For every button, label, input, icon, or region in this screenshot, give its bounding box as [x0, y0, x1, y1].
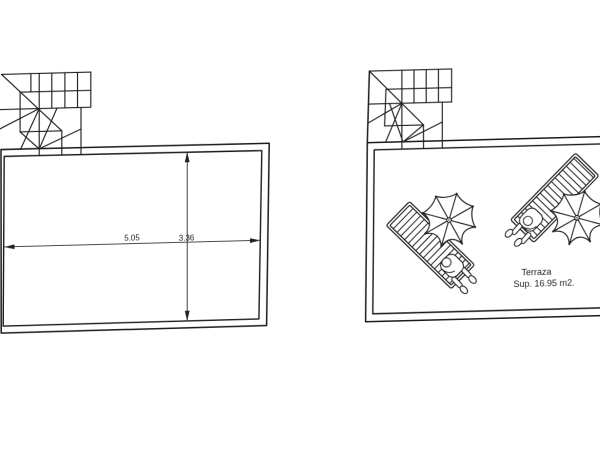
svg-text:Sup. 16.95 m2.: Sup. 16.95 m2.	[513, 277, 574, 289]
svg-text:Terraza: Terraza	[521, 266, 551, 277]
svg-text:3.36: 3.36	[179, 233, 195, 242]
svg-text:5.05: 5.05	[124, 233, 140, 242]
